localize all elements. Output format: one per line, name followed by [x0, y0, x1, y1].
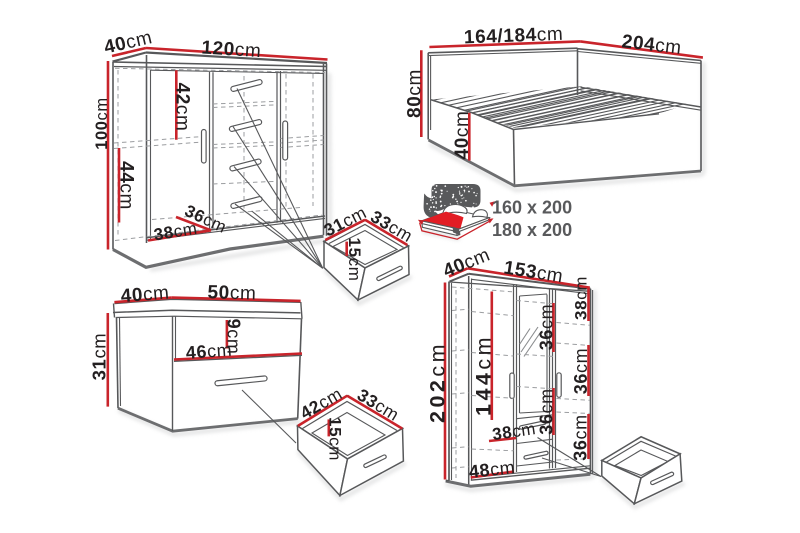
svg-text:80cm: 80cm [404, 69, 425, 118]
svg-text:38cm: 38cm [491, 419, 537, 444]
svg-text:202cm: 202cm [426, 341, 450, 423]
svg-text:48cm: 48cm [468, 457, 516, 482]
svg-text:100cm: 100cm [93, 97, 111, 150]
svg-text:46cm: 46cm [185, 340, 233, 363]
svg-text:153cm: 153cm [502, 257, 565, 287]
svg-text:40cm: 40cm [102, 27, 154, 58]
svg-text:36cm: 36cm [537, 304, 557, 350]
svg-text:144cm: 144cm [472, 334, 496, 416]
svg-text:44cm: 44cm [116, 161, 137, 210]
svg-text:15cm: 15cm [345, 238, 364, 282]
svg-text:36cm: 36cm [571, 414, 591, 460]
svg-text:120cm: 120cm [201, 37, 262, 62]
svg-text:50cm: 50cm [207, 282, 256, 304]
svg-text:36cm: 36cm [571, 348, 591, 394]
svg-text:180 x 200: 180 x 200 [492, 220, 572, 240]
svg-text:40cm: 40cm [120, 282, 170, 307]
svg-text:40cm: 40cm [452, 111, 473, 160]
svg-text:164/184cm: 164/184cm [464, 24, 564, 49]
svg-text:42cm: 42cm [172, 83, 193, 132]
svg-text:204cm: 204cm [621, 31, 683, 59]
svg-text:38cm: 38cm [572, 276, 591, 320]
svg-text:15cm: 15cm [325, 417, 344, 461]
svg-text:36cm: 36cm [537, 388, 557, 434]
svg-text:31cm: 31cm [89, 333, 110, 381]
svg-text:160 x 200: 160 x 200 [492, 197, 572, 217]
